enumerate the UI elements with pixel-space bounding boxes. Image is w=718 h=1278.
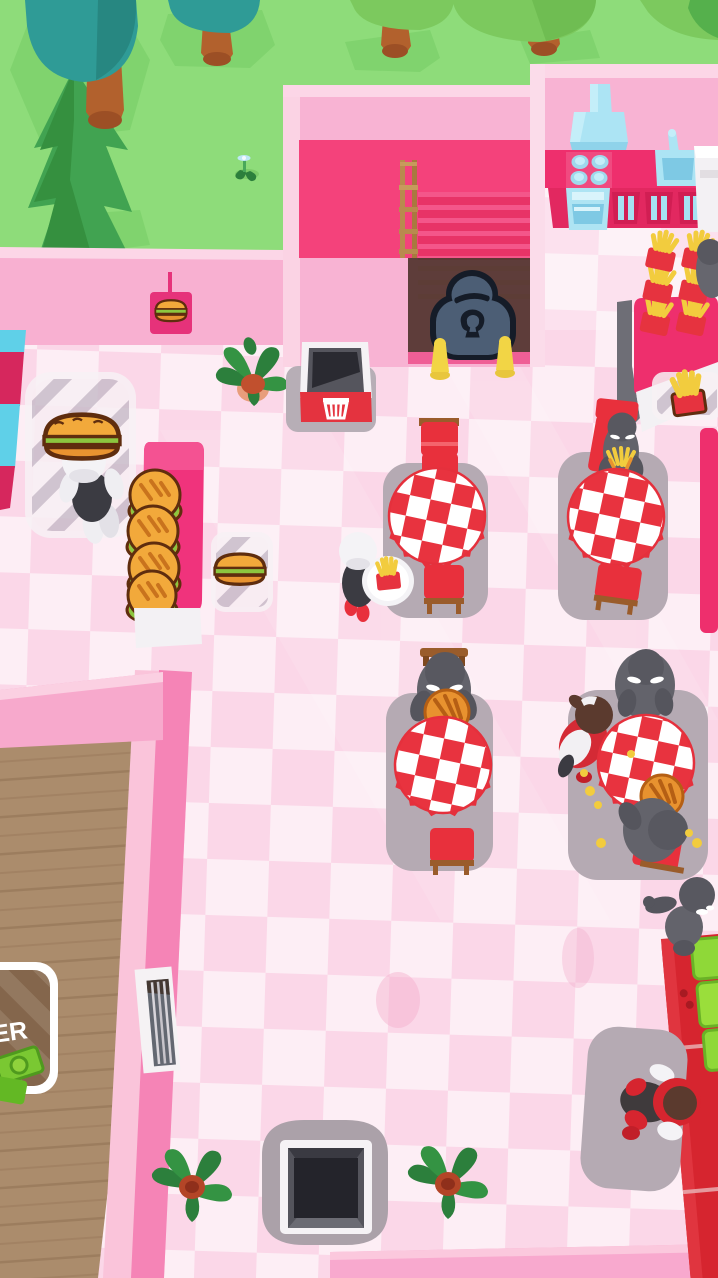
svg-text:ER: ER bbox=[0, 1016, 29, 1049]
